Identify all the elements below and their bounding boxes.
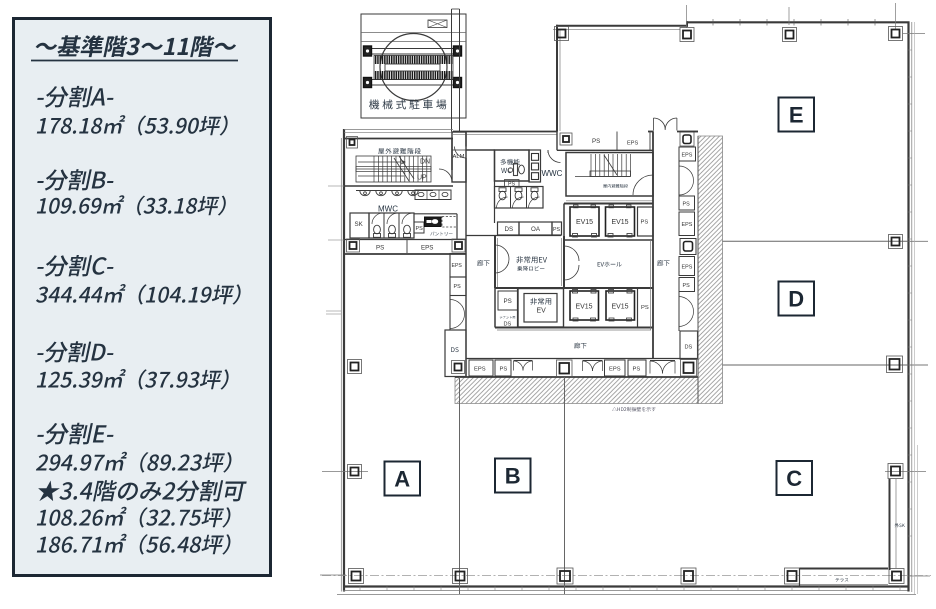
svg-text:PS: PS (641, 305, 649, 311)
svg-text:DS: DS (504, 322, 512, 328)
svg-text:DS: DS (685, 345, 693, 351)
svg-text:EPS: EPS (474, 367, 486, 373)
svg-text:EPS: EPS (682, 265, 693, 271)
svg-text:DS: DS (505, 226, 514, 233)
svg-text:EV: EV (537, 308, 547, 315)
svg-text:EPS: EPS (682, 153, 693, 159)
svg-text:PS: PS (683, 202, 691, 208)
svg-text:OA: OA (531, 226, 541, 233)
svg-text:MWC: MWC (378, 205, 398, 214)
svg-text:PS: PS (454, 284, 462, 290)
svg-text:E: E (789, 103, 804, 128)
svg-text:PS: PS (500, 367, 508, 373)
svg-text:PS: PS (504, 298, 512, 305)
svg-text:EPS: EPS (627, 141, 638, 147)
svg-text:EPS: EPS (452, 263, 463, 269)
svg-text:PS: PS (592, 138, 600, 145)
svg-text:EPS: EPS (421, 245, 433, 252)
svg-text:B: B (505, 464, 521, 489)
svg-text:DN: DN (420, 159, 430, 166)
svg-text:EV15: EV15 (611, 304, 628, 311)
svg-text:EPS: EPS (682, 222, 693, 228)
svg-text:D: D (788, 287, 804, 312)
svg-text:PS: PS (416, 226, 424, 232)
svg-text:PS: PS (633, 367, 641, 373)
svg-text:C: C (786, 466, 802, 491)
svg-text:SK: SK (355, 221, 364, 228)
svg-text:PS: PS (683, 283, 691, 289)
svg-text:UP: UP (417, 175, 427, 182)
svg-text:EV15: EV15 (575, 304, 592, 311)
svg-text:PS: PS (641, 220, 649, 226)
svg-text:A: A (394, 467, 410, 492)
svg-text:WWC: WWC (542, 169, 563, 178)
svg-text:PS: PS (553, 227, 561, 233)
svg-text:EPS: EPS (609, 367, 621, 373)
svg-text:EV15: EV15 (576, 219, 593, 226)
svg-text:EV15: EV15 (611, 219, 628, 226)
svg-text:PS: PS (376, 245, 384, 252)
